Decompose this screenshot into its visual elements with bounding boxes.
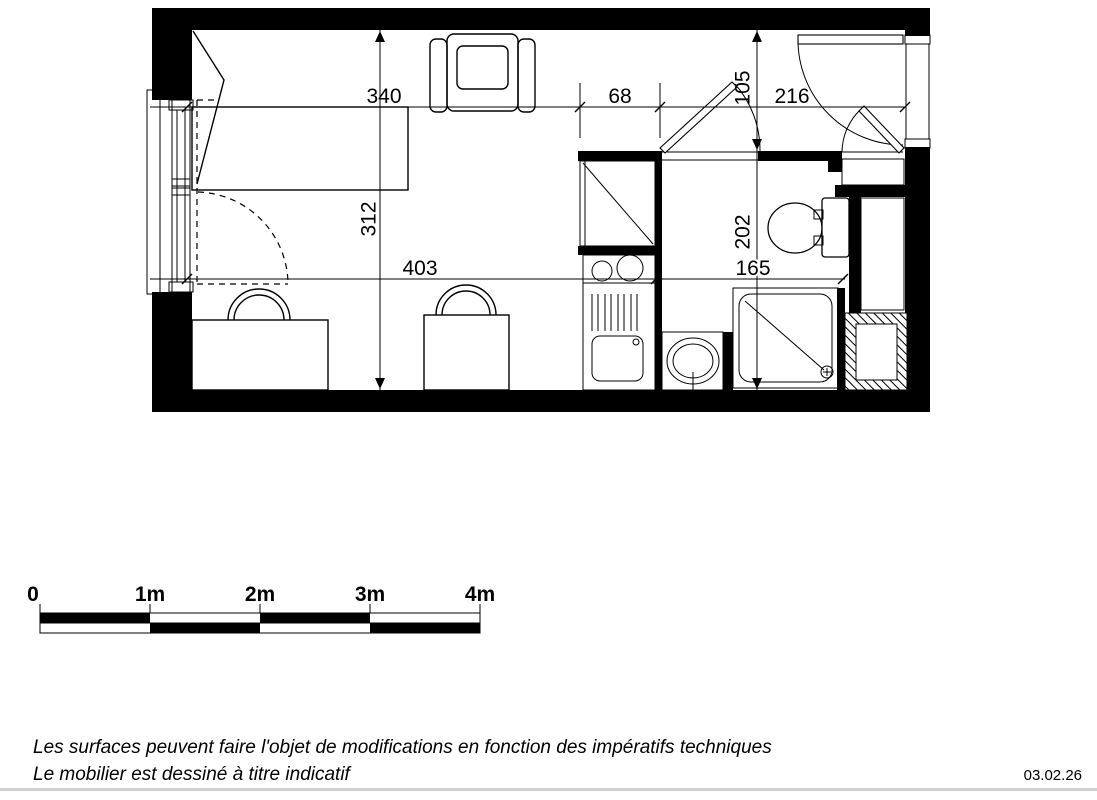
entrance-door-swing-arc	[798, 40, 903, 145]
entry-closet-nook	[842, 159, 904, 185]
bed-open-position-dashed	[197, 100, 288, 285]
footer-note-line2: Le mobilier est dessiné à titre indicati…	[33, 764, 352, 785]
burner-large	[617, 255, 643, 281]
desk-2	[424, 315, 509, 390]
shower	[733, 288, 838, 388]
dim-202: 202	[731, 214, 754, 249]
chair-2	[436, 285, 496, 315]
shower-tray	[739, 294, 832, 382]
scale-label-1m: 1m	[135, 583, 165, 606]
dim-312: 312	[357, 201, 380, 236]
dim-105: 105	[731, 70, 754, 105]
armchair-cushion	[457, 46, 508, 89]
kitchen-tall-cabinet	[580, 161, 655, 246]
page-edge-line	[0, 788, 1097, 791]
armchair-right-arm	[518, 39, 535, 112]
footer-date: 03.02.26	[1024, 767, 1082, 784]
dim-403: 403	[402, 257, 437, 280]
footer: Les surfaces peuvent faire l'objet de mo…	[0, 737, 1097, 791]
dim-68: 68	[608, 85, 631, 108]
technical-shaft	[861, 198, 904, 310]
washbasin	[662, 332, 723, 390]
burner-small	[592, 261, 612, 281]
entrance-door-leaf	[798, 35, 903, 44]
toilet	[768, 198, 849, 257]
closet-door	[842, 106, 904, 159]
floor-plan-page: 340 68 105 216 312 403 202 165 0 1m 2m 3…	[0, 0, 1097, 800]
dim-165: 165	[735, 257, 770, 280]
dim-340: 340	[366, 85, 401, 108]
footer-note-line1: Les surfaces peuvent faire l'objet de mo…	[33, 737, 772, 758]
scale-bar: 0 1m 2m 3m 4m	[27, 583, 495, 633]
window	[147, 90, 193, 294]
scale-label-0: 0	[27, 583, 39, 606]
folding-bed	[192, 31, 408, 190]
dimension-ticks	[182, 102, 910, 284]
drainboard	[592, 294, 637, 331]
chair-1	[228, 289, 290, 320]
scale-label-3m: 3m	[355, 583, 385, 606]
desk-1	[192, 320, 328, 390]
scale-label-2m: 2m	[245, 583, 275, 606]
armchair-left-arm	[430, 39, 447, 112]
entrance-door	[798, 35, 930, 148]
scale-label-4m: 4m	[465, 583, 495, 606]
closet-door-leaf	[859, 106, 904, 153]
dim-216: 216	[774, 85, 809, 108]
toilet-cistern	[822, 198, 849, 257]
bed-swing-arc	[198, 192, 288, 282]
interior-door-leaf	[660, 82, 737, 153]
kitchen-sink	[592, 336, 643, 381]
armchair	[430, 34, 535, 112]
floor-plan-drawing: 340 68 105 216 312 403 202 165 0 1m 2m 3…	[0, 0, 1097, 800]
window-sill	[147, 90, 160, 294]
kitchen-counter	[583, 283, 655, 390]
hatched-duct	[845, 313, 907, 390]
kitchen-sink-tap	[633, 339, 639, 345]
dimension-arrows	[375, 31, 762, 389]
